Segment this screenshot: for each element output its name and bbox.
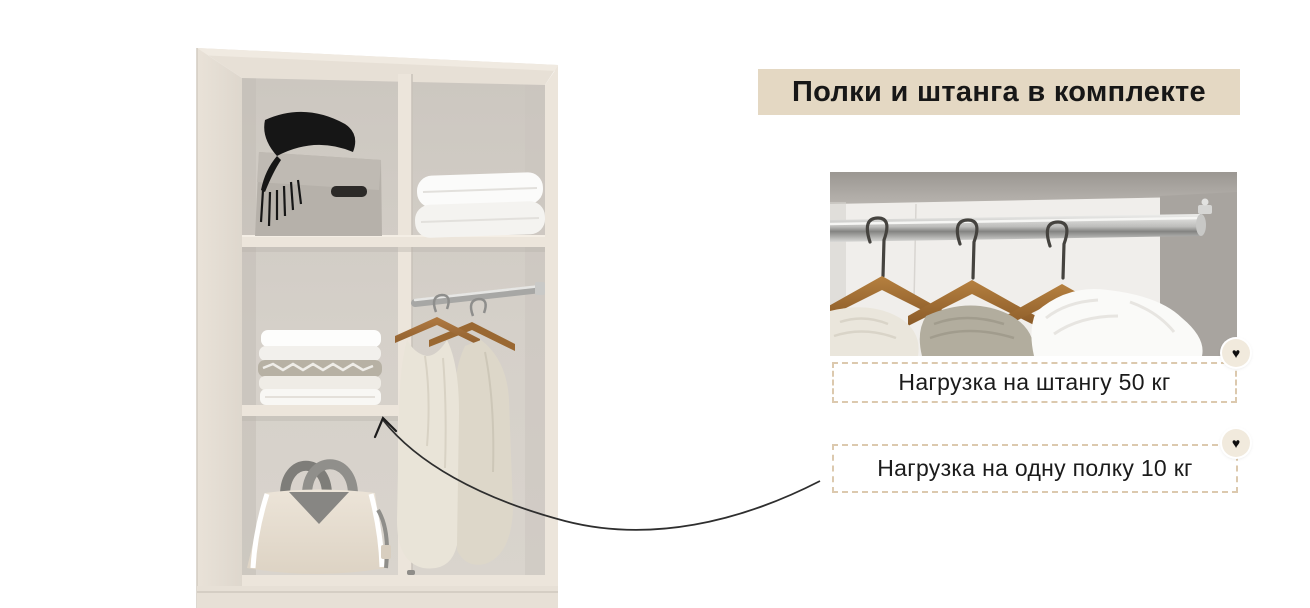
wardrobe-photo xyxy=(185,40,580,608)
rod-load-text: Нагрузка на штангу 50 кг xyxy=(898,369,1170,396)
product-infographic: Полки и штанга в комплекте xyxy=(0,0,1310,608)
shelf-load-callout: Нагрузка на одну полку 10 кг xyxy=(832,444,1238,493)
heart-glyph: ♥ xyxy=(1232,436,1240,450)
rod-closeup-illustration xyxy=(830,172,1237,356)
wardrobe-illustration xyxy=(185,40,580,608)
rod-closeup-photo xyxy=(830,172,1237,356)
heart-glyph: ♥ xyxy=(1232,346,1240,360)
rod-load-callout: Нагрузка на штангу 50 кг xyxy=(832,362,1237,403)
heart-icon: ♥ xyxy=(1222,429,1250,457)
heart-icon: ♥ xyxy=(1222,339,1250,367)
page-title: Полки и штанга в комплекте xyxy=(758,69,1240,115)
shelf-load-text: Нагрузка на одну полку 10 кг xyxy=(877,455,1193,482)
